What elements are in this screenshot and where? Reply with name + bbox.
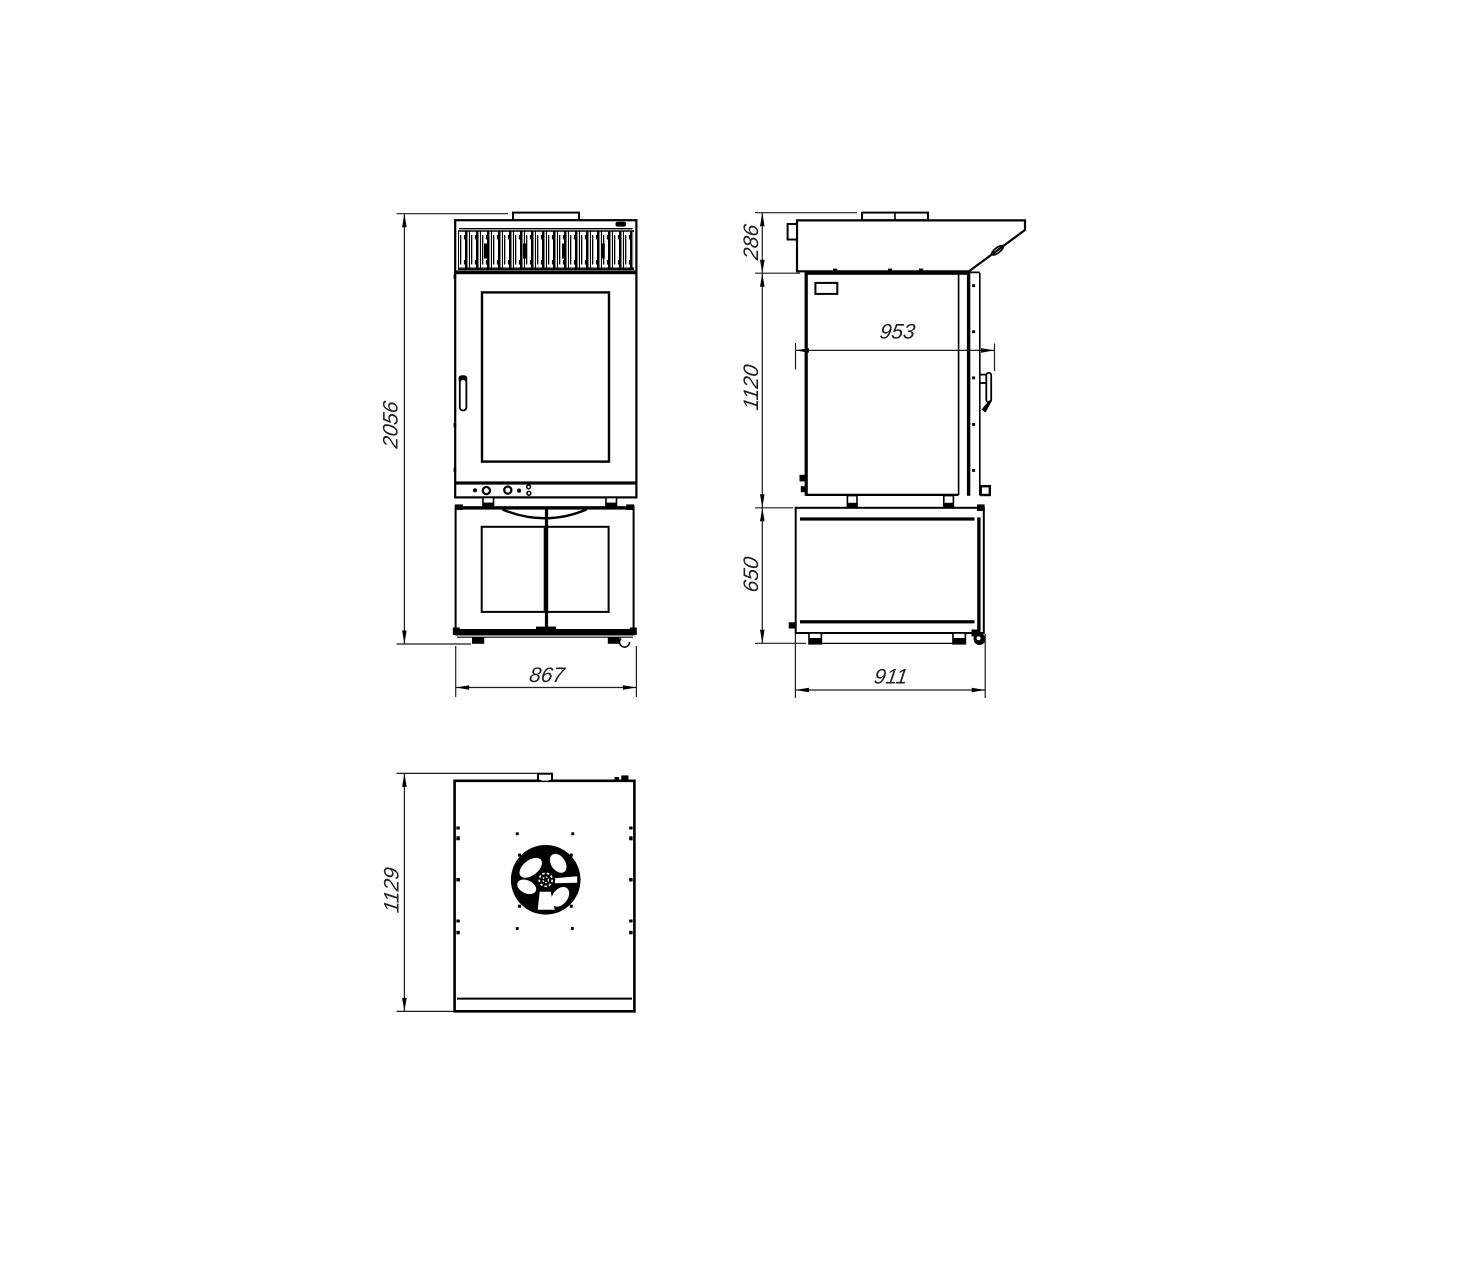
svg-text:911: 911 (873, 666, 910, 689)
svg-text:650: 650 (740, 555, 763, 594)
svg-text:953: 953 (878, 321, 917, 344)
svg-text:286: 286 (740, 223, 763, 263)
svg-text:1129: 1129 (380, 866, 403, 915)
svg-text:867: 867 (528, 664, 568, 687)
svg-text:2056: 2056 (380, 399, 403, 450)
svg-text:1120: 1120 (740, 363, 763, 412)
